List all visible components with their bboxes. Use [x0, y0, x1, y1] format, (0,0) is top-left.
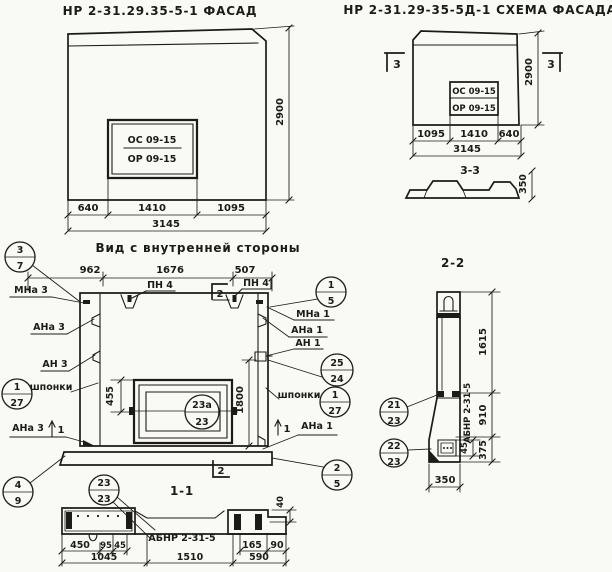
rebar-dot: [117, 515, 119, 517]
scheme-view: НР 2-31.29-35-5Д-1 СХЕМА ФАСАДА ОС 09-15…: [343, 3, 612, 159]
callout-bottom: 23: [195, 417, 208, 428]
facade-dim-height: 2900: [275, 98, 286, 126]
scheme-dim-height: 2900: [524, 58, 535, 86]
section22-dim-375: 375: [478, 440, 489, 460]
technical-drawing: НР 2-31.29.35-5-1 ФАСАД ОС 09-15 ОР 09-1…: [0, 0, 612, 572]
section11-dim-1045: 1045: [91, 552, 117, 563]
facade-view: НР 2-31.29.35-5-1 ФАСАД ОС 09-15 ОР 09-1…: [63, 4, 294, 234]
scheme-window-mark-bottom: ОР 09-15: [452, 104, 496, 114]
label-ana3-bottom: АНа 3: [12, 423, 44, 434]
section-3-3: 3-3 350: [406, 164, 535, 202]
callout-2-5: 2 5: [322, 460, 352, 490]
section22-dim-1615: 1615: [478, 328, 489, 356]
section11-dim-90: 90: [270, 540, 284, 551]
section3-marker-right-label: 3: [547, 58, 555, 71]
callout-top: 4: [15, 480, 22, 491]
callout-top: 22: [387, 441, 400, 452]
callout-top: 1: [332, 390, 339, 401]
inner-dim-507: 507: [235, 265, 256, 276]
section11-dim-40: 40: [276, 496, 286, 508]
section11-left-box-inner: [65, 511, 132, 531]
lifting-loop-icon: [440, 297, 457, 311]
callout-bottom: 27: [328, 406, 341, 417]
callout-bottom: 5: [328, 296, 335, 307]
rebar-dot: [87, 515, 89, 517]
callout-top: 1: [328, 280, 335, 291]
facade-dim-1095: 1095: [217, 203, 245, 214]
section11-hook: [89, 534, 97, 541]
section11-part-label: АБНР 2-31-5: [148, 533, 215, 544]
section22-part-label: АБНР 2-31-5: [463, 383, 473, 443]
section1-marker-right: [275, 420, 281, 435]
facade-dim-total: 3145: [152, 219, 180, 230]
callout-bottom: 27: [10, 398, 23, 409]
pn4-left-flag: [132, 291, 175, 298]
section22-title: 2-2: [441, 256, 465, 270]
drawing-sheet: НР 2-31.29.35-5-1 ФАСАД ОС 09-15 ОР 09-1…: [0, 0, 612, 572]
callout-bottom: 5: [334, 479, 341, 490]
facade-window-frame: [108, 120, 197, 178]
inner-dim-1676: 1676: [156, 265, 184, 276]
facade-window-mark-top: ОС 09-15: [128, 135, 177, 146]
scheme-dim-640: 640: [499, 129, 520, 140]
callout-top: 23а: [192, 400, 212, 411]
label-ana1: АНа 1: [291, 325, 323, 336]
inner-dim-962: 962: [80, 265, 101, 276]
callout-1-27-right: 1 27: [320, 387, 350, 417]
facade-window-mark-bottom: ОР 09-15: [128, 154, 177, 165]
scheme-dim-1095: 1095: [417, 129, 445, 140]
section1-marker-left-label: 1: [58, 425, 65, 436]
section11-dim-1510: 1510: [177, 552, 204, 563]
section33-title: 3-3: [460, 164, 480, 177]
label-an1: АН 1: [295, 338, 320, 349]
rebar-dot: [77, 515, 79, 517]
rebar-dot: [450, 447, 452, 449]
section-2-2: 2-2 1615 910 375 45 350 АБНР 2-31-5 21 2…: [380, 256, 500, 492]
window-hinge-left: [129, 407, 135, 415]
section11-dim-590: 590: [249, 552, 269, 563]
channel-anchor: [234, 514, 241, 530]
rebar-dot: [107, 515, 109, 517]
label-an3: АН 3: [42, 359, 67, 370]
section1-marker-right-label: 1: [284, 424, 291, 435]
section33-profile-detail: [424, 190, 466, 198]
callout-bottom: 9: [15, 496, 22, 507]
inner-panel-walls: [100, 293, 258, 446]
section11-dim-95: 95: [100, 541, 112, 551]
inner-dim-455: 455: [105, 386, 116, 406]
inner-dim-1800: 1800: [235, 386, 246, 414]
section1-marker-left: [49, 421, 55, 436]
section22-dim-910: 910: [478, 405, 489, 426]
callout-leaders: [30, 265, 323, 483]
mid-anchor-right: [452, 391, 460, 397]
scheme-window-mark-top: ОС 09-15: [452, 87, 496, 97]
label-mna3: МНа 3: [14, 285, 48, 296]
notch-anchor-left: [128, 295, 132, 302]
section11-title: 1-1: [170, 484, 194, 498]
channel-anchor: [255, 514, 262, 530]
callout-bottom: 23: [97, 494, 110, 505]
callout-23a-23: 23а 23: [185, 395, 219, 429]
callout-top: 25: [330, 358, 343, 369]
callout-4-9: 4 9: [3, 477, 33, 507]
channel-anchor: [126, 512, 132, 529]
facade-title: НР 2-31.29.35-5-1 ФАСАД: [63, 4, 258, 18]
label-shponki-right: шпонки: [278, 390, 321, 401]
callout-top: 2: [334, 463, 341, 474]
inner-panel-outline: [80, 293, 268, 446]
label-ana3: АНа 3: [33, 322, 65, 333]
callout-top: 23: [97, 478, 110, 489]
section2-marker-top-label: 2: [217, 289, 224, 300]
callout-top: 3: [17, 245, 24, 256]
inner-view-title: Вид с внутренней стороны: [96, 241, 301, 255]
label-shponki-left: шпонки: [30, 382, 73, 393]
callout-bottom: 7: [17, 261, 24, 272]
section11-dim-450: 450: [70, 540, 90, 551]
label-mna1: МНа 1: [296, 309, 330, 320]
facade-top-band: [68, 43, 258, 46]
section22-dim-350: 350: [435, 475, 456, 486]
mid-anchor-left: [437, 391, 444, 397]
callout-top: 21: [387, 400, 400, 411]
inner-top-notches: [121, 295, 243, 308]
section3-marker-left-label: 3: [393, 58, 401, 71]
callout-top: 1: [14, 382, 21, 393]
callout-bottom: 23: [387, 457, 400, 468]
section11-dim-165: 165: [242, 540, 262, 551]
section11-dim-45: 45: [114, 541, 126, 551]
facade-dim-640: 640: [78, 203, 99, 214]
section22-bar: [437, 318, 460, 398]
facade-dimension-ticks: [65, 25, 292, 234]
label-pn4-left: ПН 4: [147, 280, 173, 291]
rebar-dot: [447, 447, 449, 449]
section11-left-box: [62, 508, 135, 534]
callout-22-23: 22 23: [380, 439, 408, 468]
section-1-1: 1-1 АБНР 2-31-5 450 95 45 165 90 1045 15…: [59, 475, 296, 566]
callout-1-5: 1 5: [316, 277, 346, 307]
callout-3-7: 3 7: [5, 242, 35, 272]
callout-23-23: 23 23: [89, 475, 119, 505]
section33-profile: [406, 181, 519, 198]
scheme-dim-1410: 1410: [460, 129, 488, 140]
inner-view: Вид с внутренней стороны 962 1676 507 45…: [2, 241, 353, 507]
callout-bottom: 24: [330, 374, 344, 385]
section33-dim-350: 350: [518, 174, 529, 194]
inner-base-strip: [60, 452, 272, 465]
cap-anchor-band: [437, 313, 460, 318]
callout-bottom: 23: [387, 416, 400, 427]
label-pn4-right: ПН 4: [243, 278, 269, 289]
anchor-mark-bottom-left: [83, 440, 95, 446]
scheme-title: НР 2-31.29-35-5Д-1 СХЕМА ФАСАДА: [343, 3, 612, 17]
scheme-dim-total: 3145: [453, 144, 481, 155]
facade-dim-1410: 1410: [138, 203, 166, 214]
rebar-dot: [443, 447, 445, 449]
anchor-mark-top-right: [256, 300, 263, 304]
section22-lower-sep: [437, 398, 460, 456]
callout-21-23: 21 23: [380, 398, 408, 427]
section11-middle-top: [135, 511, 224, 518]
channel-anchor: [66, 512, 72, 529]
label-ana1-bottom: АНа 1: [301, 421, 333, 432]
callout-25-24: 25 24: [321, 354, 353, 386]
section2-marker-bottom-label: 2: [218, 466, 225, 477]
facade-window-inner: [112, 124, 193, 174]
rebar-dot: [97, 515, 99, 517]
callout-1-27-left: 1 27: [2, 379, 32, 409]
section22-lower: [429, 398, 460, 462]
